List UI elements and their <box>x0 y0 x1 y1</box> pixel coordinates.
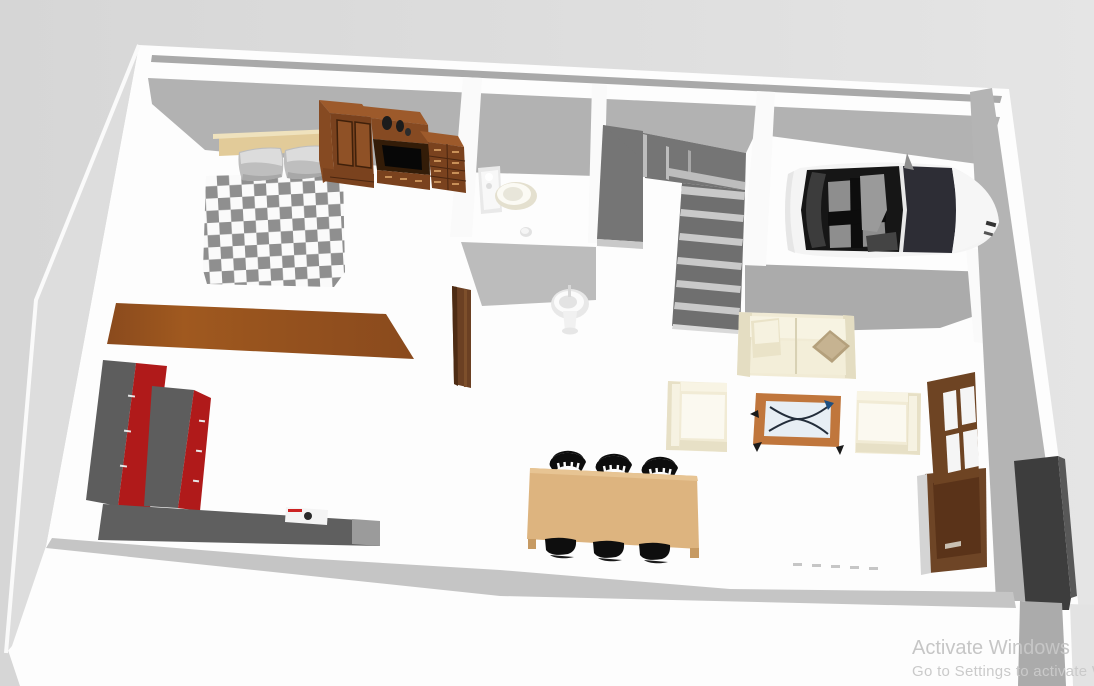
svg-text:Go to Settings to activate W: Go to Settings to activate W <box>912 663 1094 680</box>
svg-text:Activate Windows: Activate Windows <box>912 637 1070 659</box>
